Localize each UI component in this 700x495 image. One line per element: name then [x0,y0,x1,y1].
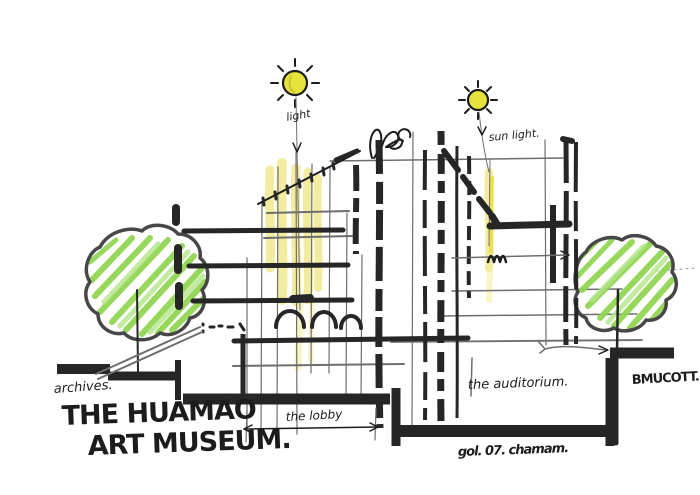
sun-right-label: sun light. [488,127,540,144]
archives-label: archives. [53,378,113,397]
tree-right-trunk [617,290,618,352]
sketch-canvas: light sun light. archives. THE HUAMAO AR… [0,0,700,495]
site-label: BMUCOTT. [631,370,699,388]
light-arrow-right [478,127,486,135]
sketch-title-line2: ART MUSEUM. [87,424,291,462]
tree-left-trunk [137,290,138,371]
tick-row [203,324,244,332]
sketch-page: light sun light. archives. THE HUAMAO AR… [0,0,700,495]
signature-label: gol. 07. chamam. [458,441,569,460]
light-line-right [479,112,489,172]
sun-left-label: light [285,107,312,124]
arches [276,311,361,328]
tree-left [86,225,208,371]
auditorium-label: the auditorium. [468,374,569,393]
lobby-label: the lobby [285,407,343,424]
